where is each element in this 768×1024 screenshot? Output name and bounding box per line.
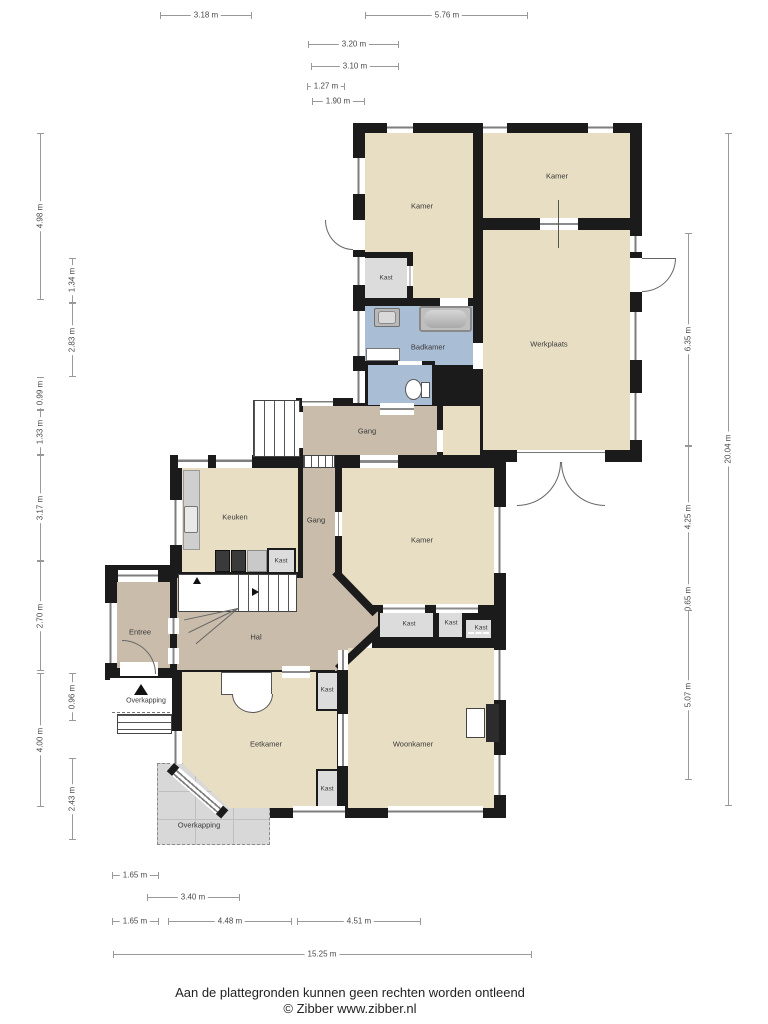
room-label-kast: Kast	[274, 558, 287, 565]
door-entree-hal	[168, 648, 179, 664]
window	[387, 123, 413, 133]
room-label-woonkamer: Woonkamer	[393, 740, 433, 749]
door-gap	[437, 430, 443, 452]
door-gap	[630, 258, 642, 292]
stairs-exterior	[253, 400, 300, 457]
door-badkamer	[380, 403, 414, 415]
room-label-hal: Hal	[250, 633, 261, 642]
window	[353, 371, 365, 403]
window	[630, 236, 642, 252]
dim-label: 4.25 m	[684, 502, 693, 532]
window	[494, 650, 506, 700]
kitchen-counter-2	[247, 550, 267, 572]
dim-label: 1.27 m	[311, 82, 341, 91]
sliding-door	[436, 604, 478, 613]
room-label-kamer: Kamer	[411, 202, 433, 211]
dim-label: 15.25 m	[305, 950, 340, 959]
window	[118, 570, 158, 582]
window	[353, 311, 365, 356]
door-closet	[407, 266, 413, 286]
dim-label: 1.65 m	[120, 871, 150, 880]
sink-basin	[378, 311, 396, 324]
floorplan: 3.18 m 5.76 m 3.20 m 3.10 m 1.27 m 1.90 …	[0, 0, 768, 1024]
dim-label: 2.43 m	[68, 784, 77, 814]
door-gap	[473, 343, 483, 369]
room-label-kast: Kast	[444, 620, 457, 627]
dim-label: 20.04 m	[724, 432, 733, 467]
window	[105, 603, 117, 663]
dim-label: 1.33 m	[36, 417, 45, 447]
room-label-kast: Kast	[320, 687, 333, 694]
bathroom-shelf	[366, 348, 400, 361]
door-gap	[353, 220, 365, 250]
dim-label: 4.00 m	[36, 725, 45, 755]
bathtub-inner	[424, 310, 467, 328]
room-label-keuken: Keuken	[222, 513, 247, 522]
window	[170, 500, 182, 545]
window	[353, 158, 365, 194]
room-label-gang: Gang	[358, 427, 376, 436]
dim-line	[728, 133, 729, 806]
dim-label: 2.83 m	[68, 325, 77, 355]
room-label-overkapping: Overkapping	[178, 821, 221, 830]
steps-gang	[303, 455, 335, 468]
room-label-kamer: Kamer	[411, 536, 433, 545]
window	[178, 455, 208, 468]
door-track	[517, 452, 605, 453]
tv-wall	[486, 704, 499, 742]
door-hal-woonkamer	[338, 650, 348, 670]
room-label-kast: Kast	[379, 275, 392, 282]
french-door-arc	[561, 462, 605, 506]
tv-screen	[466, 708, 485, 738]
window	[630, 312, 642, 360]
french-door-arc	[517, 462, 561, 506]
dim-label: 4.98 m	[36, 201, 45, 231]
toilet-bowl	[405, 379, 422, 400]
dim-label: 0.99 m	[36, 378, 45, 408]
door-arc	[642, 258, 676, 292]
window	[630, 393, 642, 440]
window	[293, 806, 345, 818]
door-leaf	[558, 200, 559, 248]
room-label-werkplaats: Werkplaats	[530, 340, 567, 349]
dim-label: 1.90 m	[323, 97, 353, 106]
window	[353, 257, 365, 285]
room-label-overkapping: Overkapping	[126, 698, 166, 705]
window	[588, 123, 613, 133]
dim-label: 3.10 m	[340, 62, 370, 71]
room-label-eetkamer: Eetkamer	[250, 740, 282, 749]
dim-label: 3.20 m	[339, 40, 369, 49]
door-gap	[440, 298, 468, 306]
disclaimer-text: Aan de plattegronden kunnen geen rechten…	[0, 985, 700, 1000]
door-gap	[296, 412, 303, 448]
dim-label: 3.40 m	[178, 893, 208, 902]
window	[494, 507, 506, 573]
stairs-arrow-up	[193, 577, 201, 584]
dim-label: 3.17 m	[36, 493, 45, 523]
window	[302, 398, 333, 406]
room-label-kast: Kast	[320, 786, 333, 793]
dim-label: 0.96 m	[68, 682, 77, 712]
room-label-entree: Entree	[129, 628, 151, 637]
dim-label: 5.76 m	[432, 11, 462, 20]
window	[483, 123, 507, 133]
room-label-kamer: Kamer	[546, 172, 568, 181]
stairs-treads	[238, 575, 296, 611]
entry-steps	[117, 714, 172, 734]
dim-label: 3.18 m	[191, 11, 221, 20]
dim-label: 1.34 m	[68, 265, 77, 295]
room-label-kast: Kast	[402, 621, 415, 628]
copyright-text: © Zibber www.zibber.nl	[0, 1001, 700, 1016]
window	[170, 731, 182, 764]
door-hal-eetkamer	[282, 666, 310, 678]
window	[216, 455, 252, 468]
door-gang-kamer	[360, 455, 398, 468]
kitchen-sink	[184, 506, 198, 533]
window	[494, 755, 506, 795]
dining-table	[221, 672, 272, 695]
room-label-kast: Kast	[474, 625, 487, 632]
canopy-small-dashes	[112, 712, 170, 713]
toilet-tank	[421, 382, 430, 398]
room-label-gang: Gang	[307, 516, 325, 525]
entrance-arrow	[134, 684, 148, 695]
door-arc	[325, 220, 353, 250]
dim-label: 2.70 m	[36, 601, 45, 631]
stove	[231, 550, 246, 572]
closet-shelf-dashes	[468, 632, 489, 634]
room-floor-passage	[443, 406, 480, 455]
room-label-badkamer: Badkamer	[411, 343, 445, 352]
stove	[215, 550, 230, 572]
stairs-arrow-right	[252, 588, 259, 596]
sliding-door	[383, 604, 425, 613]
door-entree-hal	[168, 618, 179, 634]
dim-label: 4.48 m	[215, 917, 245, 926]
dim-label: 5.07 m	[684, 680, 693, 710]
door-kamer-werkplaats	[540, 218, 578, 230]
dim-label: 1.65 m	[120, 917, 150, 926]
window	[388, 806, 483, 818]
door-gang	[335, 512, 342, 536]
door-eetkamer-woonkamer	[338, 714, 348, 766]
dim-label: 4.51 m	[344, 917, 374, 926]
dim-label: 6.35 m	[684, 324, 693, 354]
